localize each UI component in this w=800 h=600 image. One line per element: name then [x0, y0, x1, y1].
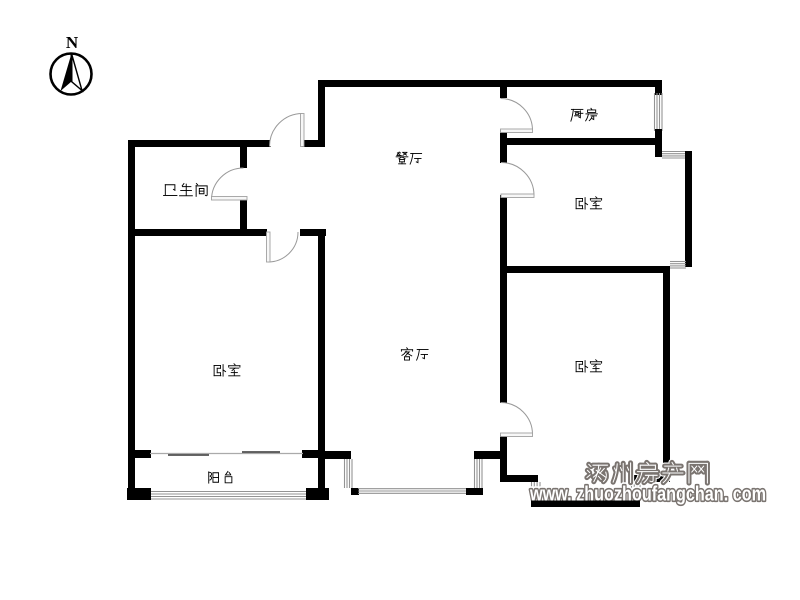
svg-text:N: N: [66, 33, 79, 52]
